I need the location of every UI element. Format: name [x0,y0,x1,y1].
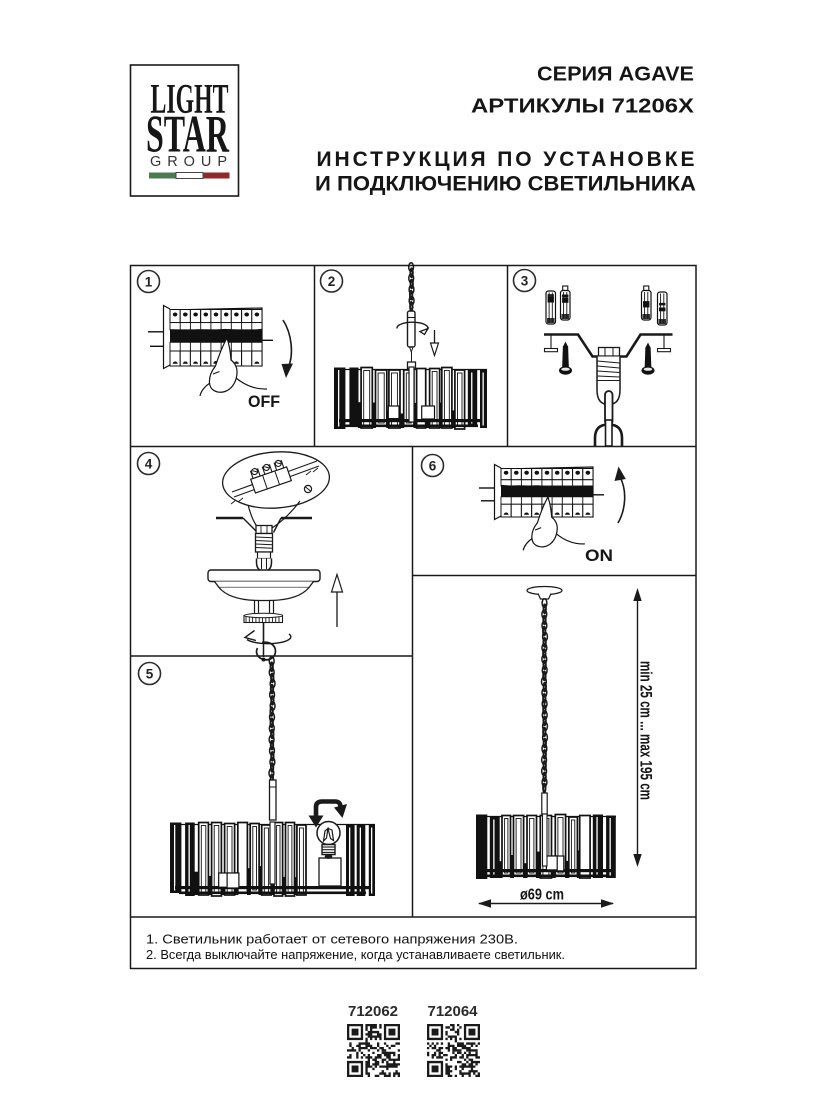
svg-text:2: 2 [328,274,336,289]
svg-text:6: 6 [429,458,437,473]
svg-text:OFF: OFF [248,393,280,411]
svg-text:min 25 cm ... max 195 cm: min 25 cm ... max 195 cm [637,661,656,800]
svg-text:СЕРИЯ AGAVE: СЕРИЯ AGAVE [537,63,694,86]
svg-text:ø69 cm: ø69 cm [520,887,564,904]
svg-text:АРТИКУЛЫ 71206X: АРТИКУЛЫ 71206X [471,95,694,118]
svg-text:3: 3 [521,273,529,288]
svg-text:И ПОДКЛЮЧЕНИЮ СВЕТИЛЬНИКА: И ПОДКЛЮЧЕНИЮ СВЕТИЛЬНИКА [315,173,696,196]
svg-text:2. Всегда выключайте напряжени: 2. Всегда выключайте напряжение, когда у… [146,948,565,962]
svg-text:712062: 712062 [348,1003,398,1020]
svg-text:1. Светильник работает от сете: 1. Светильник работает от сетевого напря… [146,933,518,947]
svg-text:1: 1 [145,274,153,289]
svg-text:5: 5 [146,666,154,681]
svg-text:4: 4 [145,456,153,471]
svg-text:ON: ON [585,546,613,565]
svg-text:712064: 712064 [428,1003,479,1020]
svg-text:ИНСТРУКЦИЯ ПО УСТАНОВКЕ: ИНСТРУКЦИЯ ПО УСТАНОВКЕ [317,148,695,171]
